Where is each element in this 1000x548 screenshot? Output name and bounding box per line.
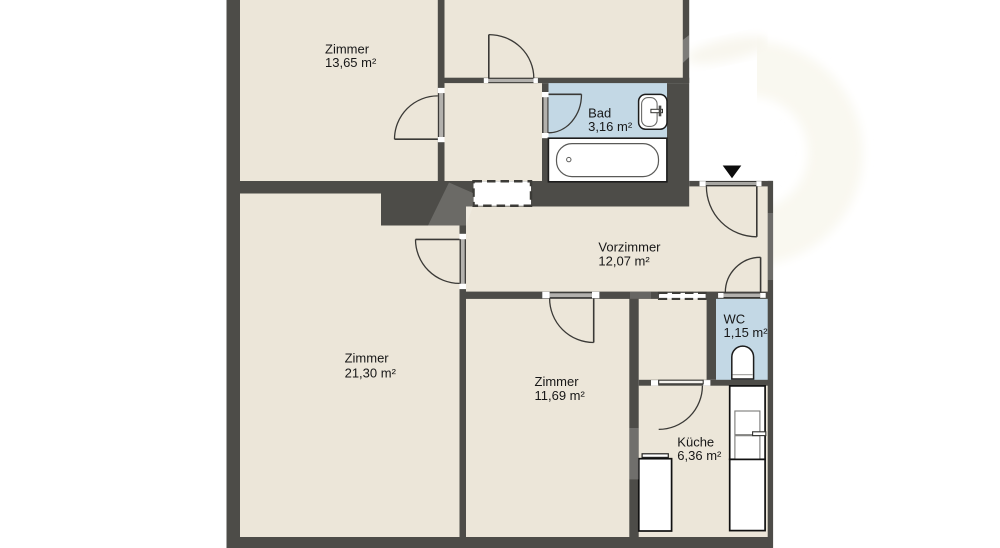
svg-text:13,65 m²: 13,65 m² — [325, 55, 377, 70]
svg-text:Zimmer: Zimmer — [535, 374, 580, 389]
svg-text:Zimmer: Zimmer — [345, 351, 390, 366]
svg-text:1,15 m²: 1,15 m² — [724, 325, 769, 340]
svg-text:Vorzimmer: Vorzimmer — [598, 239, 661, 254]
svg-text:3,16 m²: 3,16 m² — [588, 119, 633, 134]
svg-text:6,36 m²: 6,36 m² — [677, 448, 722, 463]
svg-text:Bad: Bad — [588, 105, 611, 120]
svg-text:Zimmer: Zimmer — [325, 41, 370, 56]
svg-text:21,30 m²: 21,30 m² — [345, 365, 397, 380]
svg-text:12,07 m²: 12,07 m² — [598, 254, 650, 269]
svg-text:11,69 m²: 11,69 m² — [535, 388, 586, 403]
